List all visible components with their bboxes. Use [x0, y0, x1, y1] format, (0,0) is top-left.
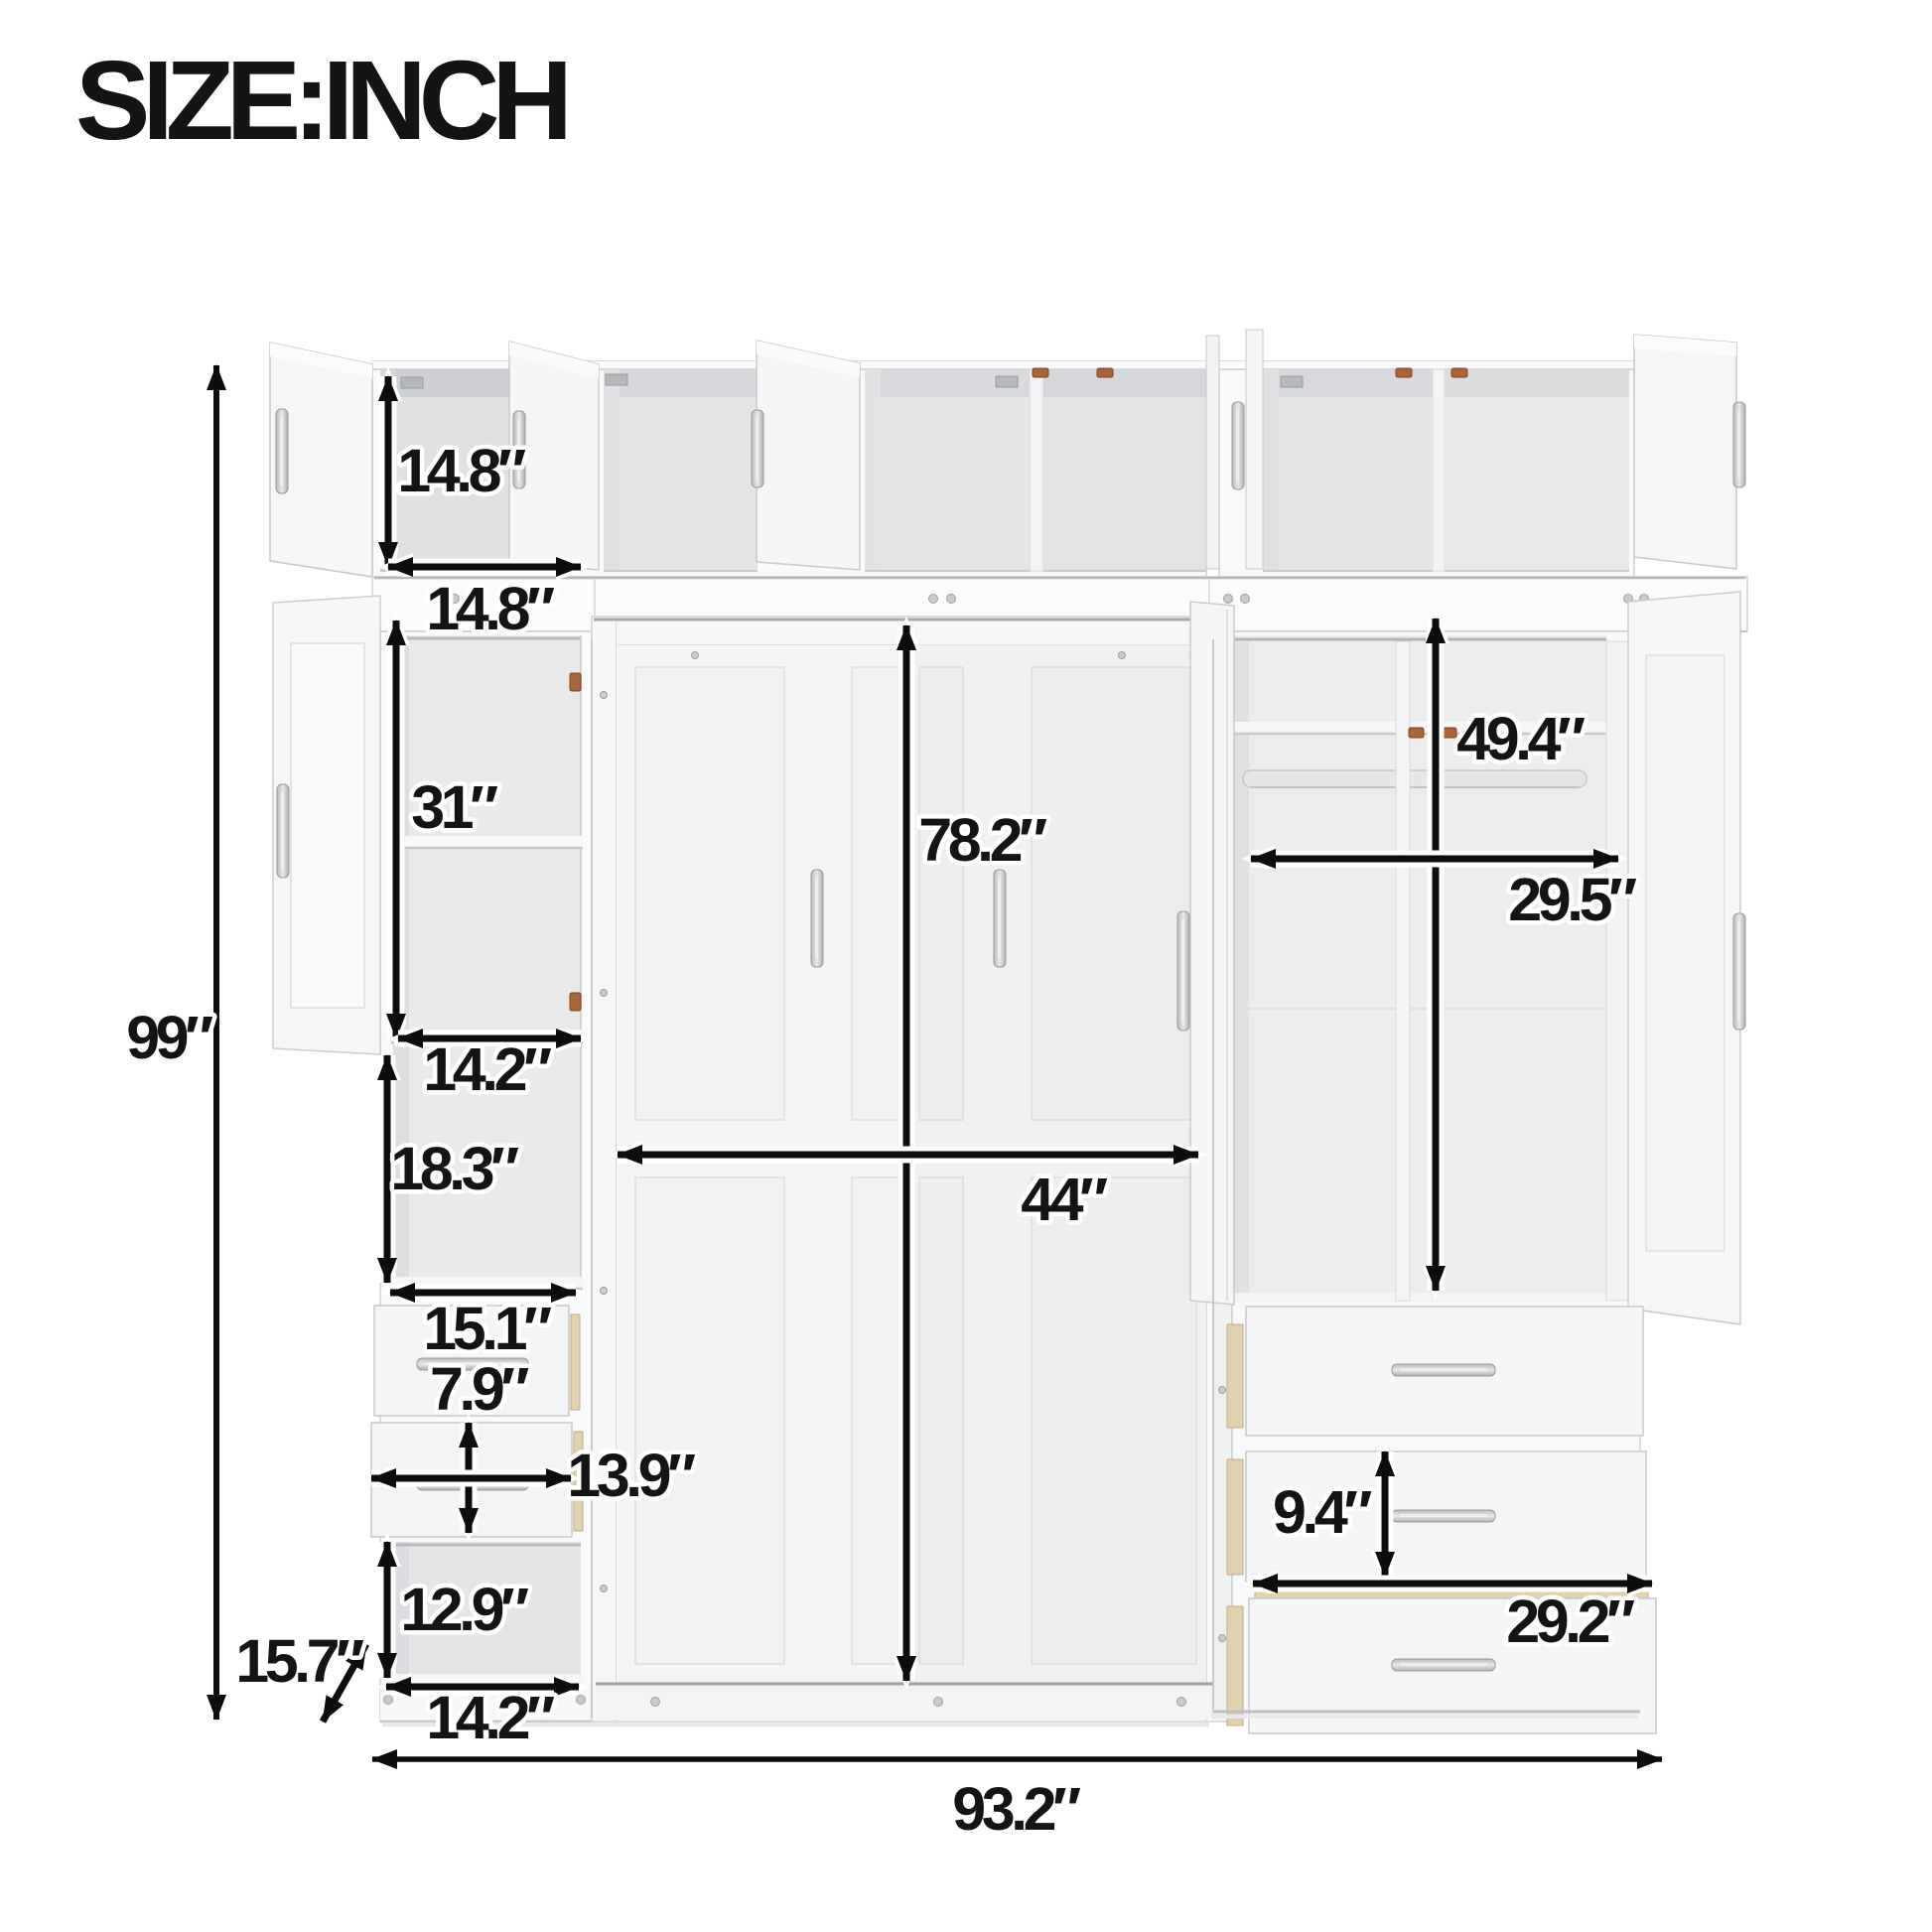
svg-text:14.2″: 14.2″: [423, 1035, 552, 1103]
svg-text:9.4″: 9.4″: [1273, 1478, 1372, 1546]
svg-text:14.8″: 14.8″: [397, 437, 526, 504]
svg-text:SIZE:INCH: SIZE:INCH: [75, 38, 565, 163]
svg-text:12.9″: 12.9″: [400, 1576, 529, 1643]
svg-text:13.9″: 13.9″: [567, 1442, 696, 1509]
svg-text:18.3″: 18.3″: [390, 1135, 519, 1202]
svg-text:99″: 99″: [126, 1004, 213, 1071]
svg-text:49.4″: 49.4″: [1456, 705, 1586, 772]
svg-text:29.2″: 29.2″: [1506, 1587, 1635, 1655]
svg-text:93.2″: 93.2″: [952, 1775, 1081, 1843]
svg-text:31″: 31″: [411, 773, 498, 841]
svg-text:14.8″: 14.8″: [426, 575, 555, 642]
svg-text:44″: 44″: [1021, 1166, 1108, 1233]
svg-text:29.5″: 29.5″: [1508, 866, 1637, 933]
svg-text:14.2″: 14.2″: [426, 1684, 555, 1751]
svg-text:7.9″: 7.9″: [430, 1355, 529, 1423]
svg-text:15.1″: 15.1″: [423, 1295, 552, 1362]
svg-text:78.2″: 78.2″: [918, 806, 1047, 874]
svg-text:15.7″: 15.7″: [235, 1627, 364, 1695]
